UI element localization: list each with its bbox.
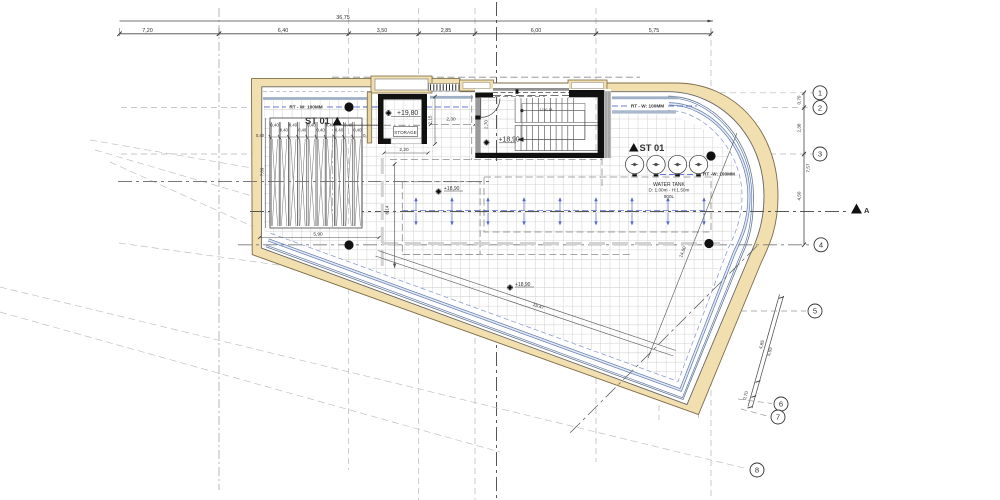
svg-text:0,40: 0,40 xyxy=(353,128,362,133)
svg-text:3,50: 3,50 xyxy=(377,28,388,34)
svg-text:D: 1.00m - H:1.50m: D: 1.00m - H:1.50m xyxy=(649,188,690,193)
svg-text:2,30: 2,30 xyxy=(446,117,456,123)
svg-text:RT - W: 100MM: RT - W: 100MM xyxy=(289,105,322,110)
svg-text:36,75: 36,75 xyxy=(336,15,350,21)
svg-text:5,55: 5,55 xyxy=(766,346,773,356)
svg-text:7,57: 7,57 xyxy=(806,163,811,172)
svg-text:0,40: 0,40 xyxy=(271,123,280,128)
svg-text:RT - W: 100MM: RT - W: 100MM xyxy=(631,104,664,109)
svg-text:6,00: 6,00 xyxy=(531,28,542,34)
svg-text:A: A xyxy=(864,206,870,215)
svg-text:+18,90: +18,90 xyxy=(499,137,520,144)
svg-text:0,40: 0,40 xyxy=(256,133,265,138)
svg-text:+19,80: +19,80 xyxy=(397,110,418,117)
svg-text:7,20: 7,20 xyxy=(142,28,153,34)
svg-text:2: 2 xyxy=(818,103,822,112)
svg-text:0,40: 0,40 xyxy=(317,128,326,133)
svg-text:3: 3 xyxy=(818,150,822,159)
svg-text:900L: 900L xyxy=(664,194,675,199)
svg-text:4,50: 4,50 xyxy=(797,191,802,200)
svg-text:5: 5 xyxy=(813,307,817,316)
svg-text:0,40: 0,40 xyxy=(298,128,307,133)
svg-text:8: 8 xyxy=(755,466,759,475)
svg-text:5,75: 5,75 xyxy=(649,28,660,34)
svg-text:2,38: 2,38 xyxy=(797,123,802,132)
svg-text:7,89: 7,89 xyxy=(260,167,265,176)
svg-text:7: 7 xyxy=(776,413,780,422)
svg-text:2,70: 2,70 xyxy=(484,120,489,129)
svg-text:17x0,18: 17x0,18 xyxy=(540,108,553,112)
svg-text:2,15: 2,15 xyxy=(428,115,433,124)
svg-text:5,90: 5,90 xyxy=(313,232,323,238)
svg-text:RT -W: 100MM: RT -W: 100MM xyxy=(703,172,735,177)
svg-text:0,70: 0,70 xyxy=(797,95,802,104)
svg-text:ST 01: ST 01 xyxy=(305,116,330,126)
svg-text:4: 4 xyxy=(819,241,823,250)
svg-text:6,14: 6,14 xyxy=(385,205,390,214)
svg-text:1: 1 xyxy=(818,89,822,98)
svg-text:STORAGE: STORAGE xyxy=(394,130,416,135)
svg-text:0,40: 0,40 xyxy=(335,128,344,133)
svg-text:2,20: 2,20 xyxy=(399,147,409,153)
svg-text:6,40: 6,40 xyxy=(278,28,289,34)
svg-text:0,70: 0,70 xyxy=(742,390,749,400)
svg-text:ST 01: ST 01 xyxy=(640,143,665,153)
svg-text:0,40: 0,40 xyxy=(280,128,289,133)
svg-text:0,40: 0,40 xyxy=(289,123,298,128)
svg-text:6: 6 xyxy=(779,400,783,409)
svg-text:2,85: 2,85 xyxy=(441,28,452,34)
